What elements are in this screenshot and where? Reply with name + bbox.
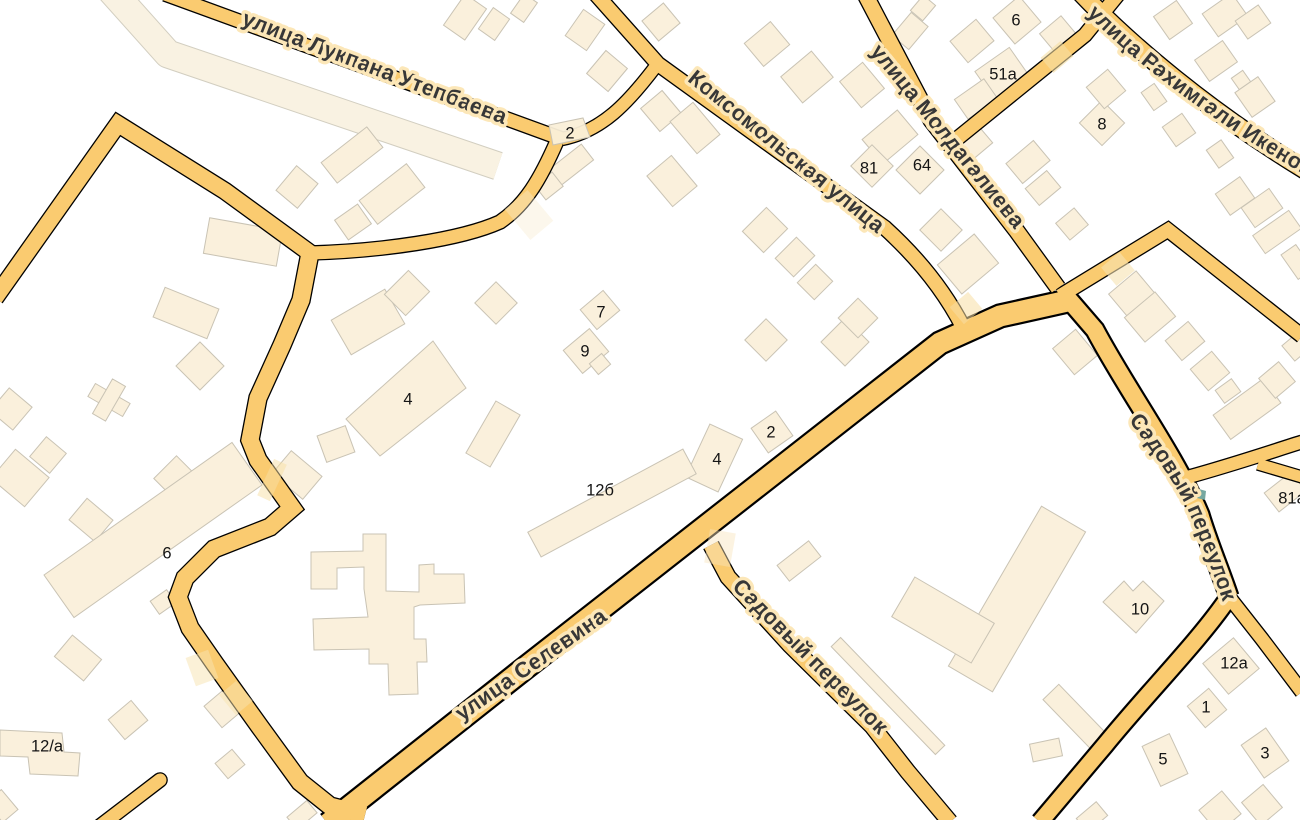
svg-text:64: 64: [913, 157, 931, 175]
svg-text:4: 4: [712, 451, 721, 469]
svg-text:7: 7: [596, 304, 605, 322]
svg-text:81: 81: [860, 160, 878, 178]
svg-text:6: 6: [1011, 12, 1020, 30]
svg-text:8: 8: [1097, 116, 1106, 134]
svg-text:12/а: 12/а: [31, 738, 64, 756]
svg-text:51а: 51а: [989, 66, 1017, 84]
svg-text:5: 5: [1158, 751, 1167, 769]
svg-text:81а: 81а: [1278, 490, 1300, 508]
svg-text:2: 2: [565, 125, 574, 143]
svg-text:10: 10: [1131, 601, 1149, 619]
svg-text:3: 3: [1260, 745, 1269, 763]
svg-text:4: 4: [403, 391, 412, 409]
svg-text:1: 1: [1201, 699, 1210, 717]
svg-text:6: 6: [162, 545, 171, 563]
svg-text:12б: 12б: [586, 482, 614, 500]
svg-text:9: 9: [580, 343, 589, 361]
svg-text:2: 2: [766, 424, 775, 442]
svg-text:12а: 12а: [1220, 655, 1248, 673]
